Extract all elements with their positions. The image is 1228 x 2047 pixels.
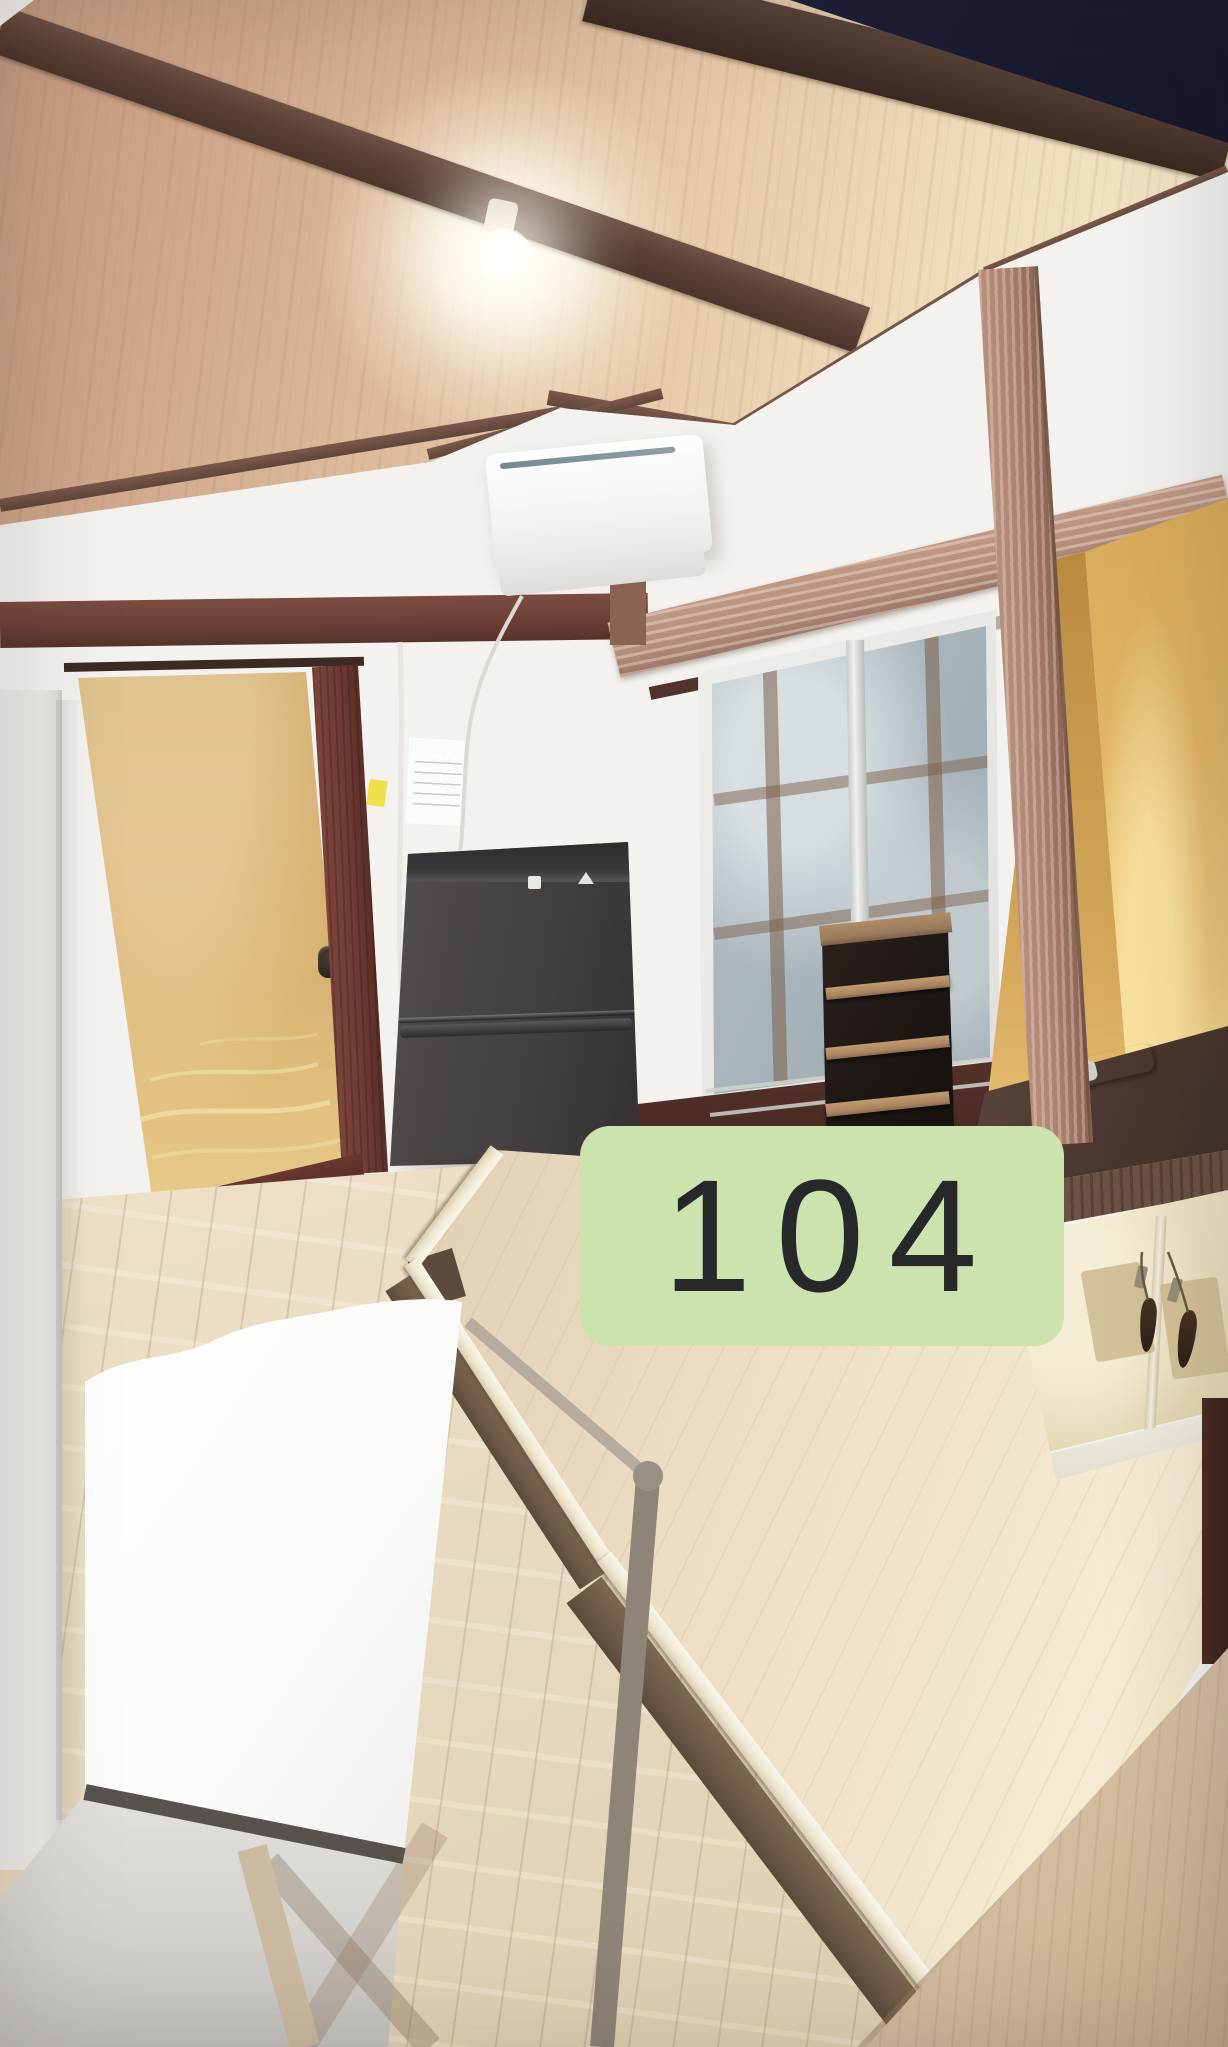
room-photo: 104 xyxy=(0,0,1228,2047)
photo-vignette xyxy=(0,0,1228,2047)
